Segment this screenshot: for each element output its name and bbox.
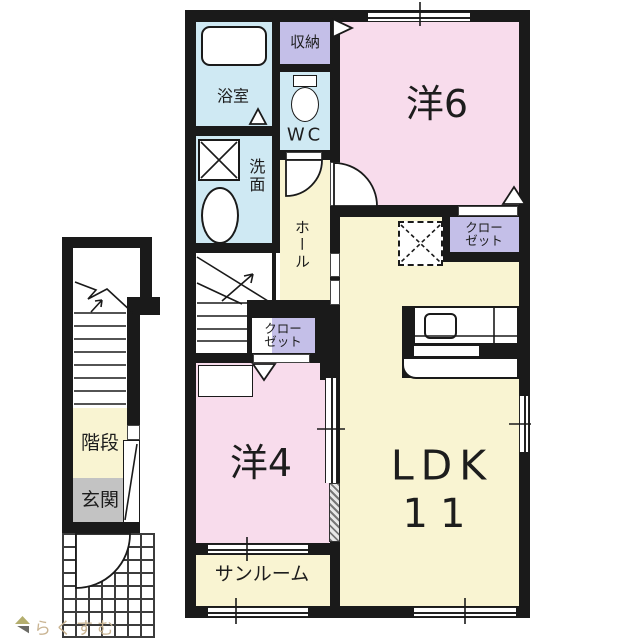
closet-yo4-door-slab (253, 354, 310, 363)
lw-wall-notch (127, 297, 160, 315)
washing-machine-box (198, 139, 240, 181)
wall-closet-yo4-right (315, 318, 330, 353)
room-ldk (340, 217, 519, 606)
kitchen-shelf (413, 345, 480, 357)
watermark-text: らくすむ (34, 614, 118, 639)
wc-label: WC (287, 127, 323, 146)
watermark-logo-icon (15, 616, 30, 634)
toilet-tank-icon (293, 75, 317, 87)
sunroom-label: サンルーム (215, 565, 309, 585)
sliding-door-hatch-panel (329, 483, 340, 542)
window-yo6-top (368, 12, 470, 22)
closet-yo4-line2: ゼット (264, 334, 302, 349)
hall-ldk-door-lower (330, 280, 340, 305)
entrance-label: 玄関 (81, 491, 119, 511)
front-door-leaf (123, 440, 140, 523)
ldk-size-label: 11 (403, 493, 478, 535)
washbasin-icon (201, 187, 239, 244)
lw-wall-bottom (62, 522, 140, 533)
understairs-nook (198, 365, 253, 397)
wall-closet-yo4-left (247, 318, 252, 353)
stairwell-label: 階段 (81, 434, 119, 454)
floor-plan-canvas: 浴室 収納 WC 洗面 ホール 洋6 クロー ゼット クロー ゼット 洋4 サン… (0, 0, 640, 640)
front-door-jamb (127, 425, 140, 440)
wall-bath-column (272, 22, 280, 253)
refrigerator-space (398, 221, 443, 266)
wc-door-slab (286, 152, 322, 160)
wall-outer-left (185, 10, 196, 618)
sliding-door-yo4-ldk (325, 378, 337, 483)
closet-yo6-label: クロー ゼット (465, 221, 503, 247)
storage-label: 収納 (290, 35, 320, 51)
wall-closet-yo6-bottom (442, 252, 530, 262)
window-ldk-bottom (414, 607, 516, 617)
lw-wall-top (62, 237, 152, 248)
western6-label: 洋6 (406, 85, 468, 125)
wall-above-closet-yo4 (247, 300, 330, 318)
window-sunroom-bottom (208, 607, 308, 617)
western4-label: 洋4 (230, 444, 292, 484)
bath-label: 浴室 (217, 89, 249, 106)
kitchen-lower-counter (402, 357, 519, 379)
ldk-label: LDK (391, 444, 493, 487)
left-stairs-lower (73, 307, 127, 408)
yo6-door-gap (330, 162, 340, 206)
wall-outer-top (185, 10, 530, 22)
wall-bath-washroom (196, 126, 272, 136)
lw-wall-right-upper (140, 237, 152, 297)
wall-storage-wc (280, 64, 330, 72)
hall-label: ホール (293, 220, 309, 271)
wall-outer-right (519, 10, 530, 618)
closet-yo6-line2: ゼット (465, 233, 503, 248)
kitchen-sink-icon (424, 313, 457, 339)
wall-washroom-stairs (185, 243, 280, 253)
closet-yo4-label: クロー ゼット (264, 322, 302, 348)
washroom-label: 洗面 (247, 158, 264, 194)
wall-stairs-divider-thin (272, 253, 276, 303)
window-ldk-right (519, 396, 529, 452)
bathtub-icon (201, 26, 267, 66)
toilet-bowl-icon (291, 87, 319, 122)
lw-wall-left (62, 237, 73, 533)
window-sunroom-top (208, 544, 308, 554)
hall-ldk-door-upper (330, 253, 340, 277)
closet-yo6-door-slab (458, 206, 518, 216)
